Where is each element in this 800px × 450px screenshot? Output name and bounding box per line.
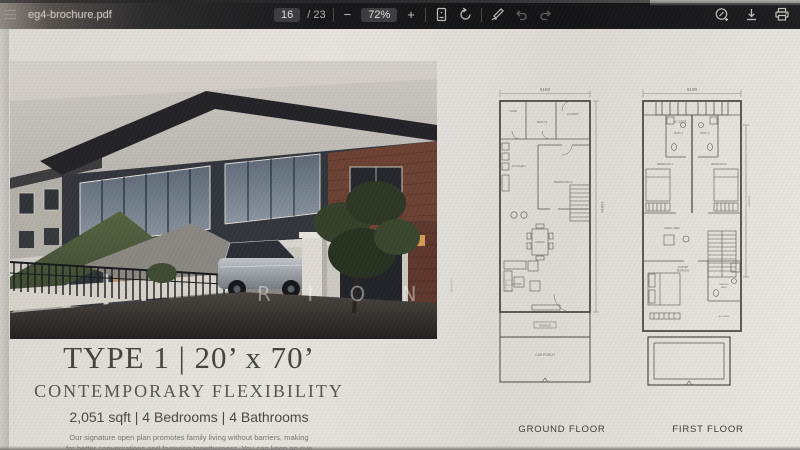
unit-specs: 2,051 sqft | 4 Bedrooms | 4 Bathrooms (8, 409, 370, 425)
pdf-page: R I O N I E TYPE 1 | 20’ x 70’ CONTEMPOR… (0, 29, 800, 450)
room-label-carporch: CAR PORCH (535, 353, 555, 357)
room-label-kitchen: KITCHEN (512, 164, 525, 168)
room-label-dining: DINING (535, 240, 544, 244)
room-label-acledge-2: AC LEDGE (718, 315, 730, 318)
download-icon[interactable] (743, 6, 760, 23)
print-icon[interactable] (773, 6, 790, 23)
page-count-label: / 23 (307, 9, 325, 21)
toolbar-divider (333, 8, 334, 22)
description-line: Our signature open plan promotes family … (8, 433, 370, 444)
pdf-viewer-window: eg4-brochure.pdf 16 / 23 − 72% + (0, 0, 800, 450)
zoom-out-button[interactable]: − (341, 7, 355, 22)
photo-glare (650, 0, 800, 6)
room-label-masterbath-1: MASTER (719, 283, 729, 286)
toolbar-divider (425, 8, 426, 22)
document-filename: eg4-brochure.pdf (28, 9, 112, 21)
page-number-input[interactable]: 16 (274, 8, 300, 22)
menu-icon[interactable] (2, 6, 19, 23)
toolbar-divider (481, 8, 482, 22)
ff-dim-height: 13300 (748, 195, 751, 207)
room-label-family: FAMILY AREA (664, 227, 680, 230)
house-illustration: R I O N (10, 61, 437, 339)
room-label-bedroom4: BEDROOM 4 (554, 180, 572, 184)
unit-type-title: TYPE 1 | 20’ x 70’ (8, 340, 370, 376)
ground-floor-caption: GROUND FLOOR (518, 424, 604, 435)
toolbar-center-group: 16 / 23 − 72% + (274, 0, 554, 29)
room-label-bath2: BATH 2 (701, 131, 710, 135)
toolbar-left-group: eg4-brochure.pdf (0, 6, 112, 23)
redo-icon[interactable] (537, 6, 554, 23)
first-floor-caption: FIRST FLOOR (672, 424, 743, 435)
room-label-living: LIVING (512, 282, 523, 286)
gf-dim-width: 6100 (540, 87, 551, 92)
screen-bottom-edge (0, 446, 800, 450)
room-label-master-2: BEDROOM (677, 270, 689, 273)
unit-type-block: TYPE 1 | 20’ x 70’ CONTEMPORARY FLEXIBIL… (8, 340, 370, 450)
room-label-laundry: LAUNDRY (567, 112, 580, 116)
rotate-icon[interactable] (457, 6, 474, 23)
room-label-acledge: AC LEDGE (673, 120, 686, 124)
annotate-icon[interactable] (713, 6, 730, 23)
fit-page-icon[interactable] (433, 6, 450, 23)
draw-icon[interactable] (489, 6, 506, 23)
room-label-bath3: BATH 3 (537, 120, 548, 124)
first-floor-plan: 6100 13300 (636, 85, 750, 441)
gf-dim-height: 19530 (600, 201, 604, 213)
ff-dim-width: 6100 (687, 87, 698, 92)
room-label-bedroom3: BEDROOM 3 (657, 162, 673, 166)
room-label-bath1: BATH 1 (675, 131, 684, 135)
room-label-masterbath-2: BATH (721, 286, 727, 289)
page-left-gutter (0, 29, 9, 450)
ground-floor-plan: 6100 19530 (492, 85, 604, 441)
photo-watermark: R I O N (257, 282, 432, 306)
unit-type-subtitle: CONTEMPORARY FLEXIBILITY (8, 381, 370, 402)
zoom-level-value[interactable]: 72% (361, 8, 397, 22)
room-label-yard: YARD (509, 109, 518, 113)
room-label-terrace: TERRACE (539, 324, 552, 328)
house-render-image: R I O N (10, 61, 437, 339)
room-label-bedroom2: BEDROOM 2 (711, 162, 727, 166)
zoom-in-button[interactable]: + (404, 7, 418, 22)
undo-icon[interactable] (513, 6, 530, 23)
